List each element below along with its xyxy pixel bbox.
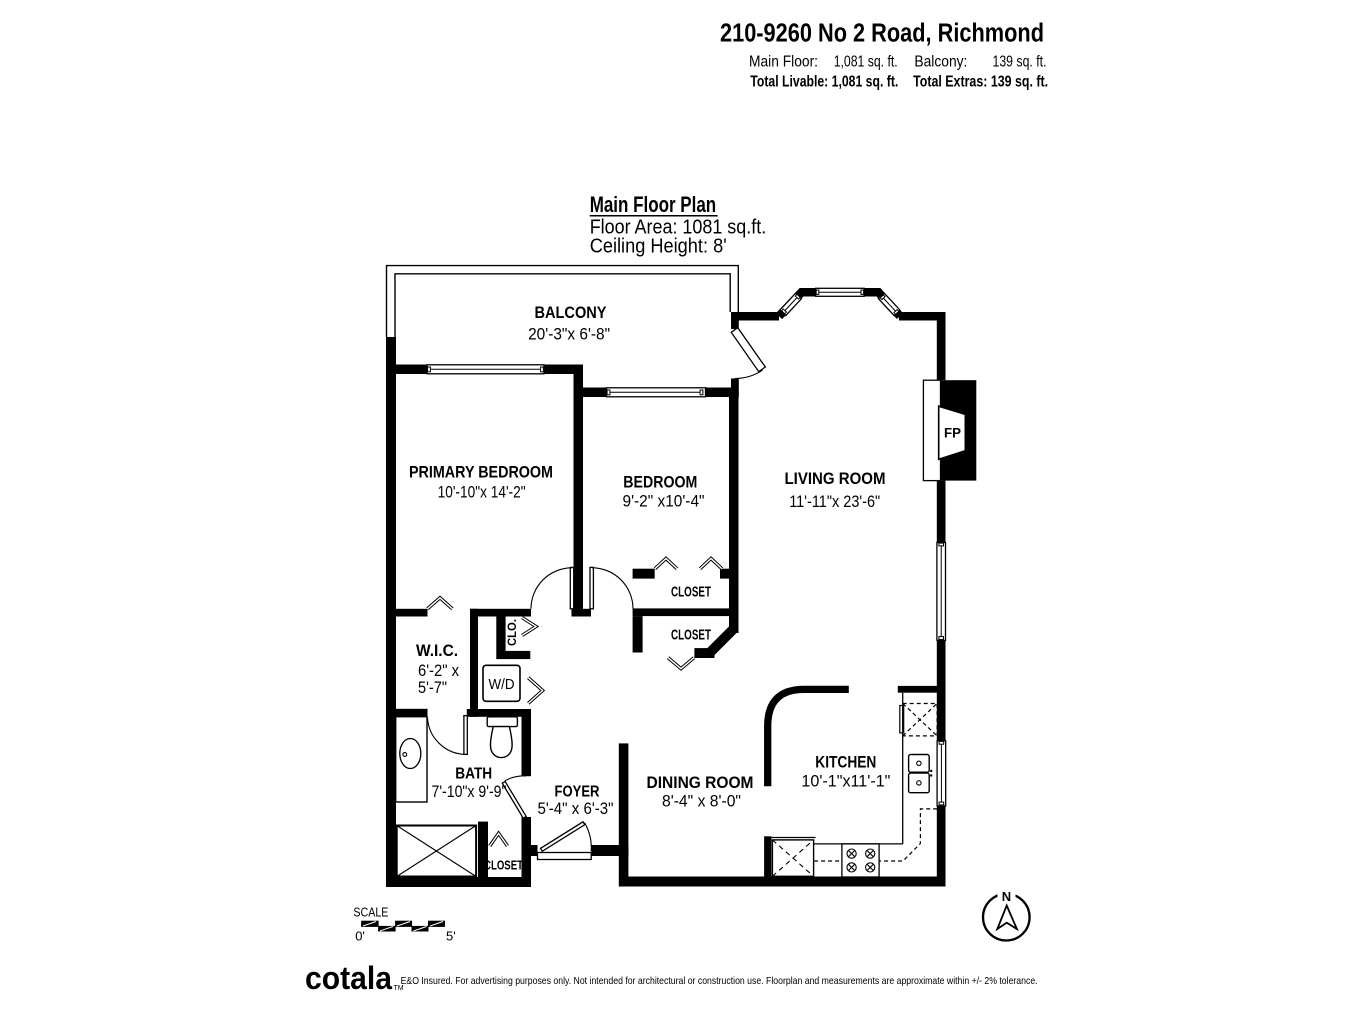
- svg-text:SCALE: SCALE: [353, 906, 388, 920]
- svg-text:FP: FP: [944, 426, 961, 441]
- svg-text:7'-10"x 9'-9": 7'-10"x 9'-9": [432, 782, 507, 801]
- svg-text:W/D: W/D: [489, 677, 515, 693]
- svg-text:BEDROOM: BEDROOM: [623, 473, 697, 492]
- svg-text:CLOSET: CLOSET: [671, 626, 711, 643]
- svg-text:LIVING ROOM: LIVING ROOM: [785, 469, 886, 488]
- svg-text:FOYER: FOYER: [555, 783, 600, 800]
- svg-text:1,081 sq. ft.: 1,081 sq. ft.: [834, 54, 898, 71]
- svg-text:BATH: BATH: [455, 766, 492, 783]
- svg-text:11'-11"x 23'-6": 11'-11"x 23'-6": [789, 492, 880, 511]
- svg-text:Main Floor Plan: Main Floor Plan: [590, 192, 717, 217]
- svg-text:Balcony:: Balcony:: [914, 54, 967, 71]
- svg-text:KITCHEN: KITCHEN: [815, 753, 876, 772]
- svg-text:Main Floor:: Main Floor:: [749, 54, 818, 71]
- svg-text:9'-2" x10'-4": 9'-2" x10'-4": [623, 492, 705, 511]
- svg-text:Total Livable: 1,081 sq. ft.: Total Livable: 1,081 sq. ft.: [750, 74, 898, 91]
- svg-text:5': 5': [446, 929, 456, 944]
- svg-text:5'-7": 5'-7": [418, 678, 447, 697]
- svg-text:cotala: cotala: [305, 960, 393, 996]
- svg-text:CLOSET: CLOSET: [671, 583, 711, 600]
- svg-text:DINING ROOM: DINING ROOM: [647, 773, 754, 792]
- svg-text:Ceiling Height: 8': Ceiling Height: 8': [590, 236, 727, 258]
- svg-text:BALCONY: BALCONY: [535, 303, 608, 322]
- svg-text:E&O Insured. For advertising p: E&O Insured. For advertising purposes on…: [401, 976, 1038, 987]
- svg-text:139 sq. ft.: 139 sq. ft.: [993, 54, 1047, 71]
- svg-text:210-9260 No 2 Road, Richmond: 210-9260 No 2 Road, Richmond: [720, 20, 1044, 48]
- svg-text:0': 0': [355, 929, 365, 944]
- svg-text:10'-10"x 14'-2": 10'-10"x 14'-2": [438, 483, 526, 502]
- svg-text:Total Extras: 139 sq. ft.: Total Extras: 139 sq. ft.: [913, 74, 1048, 91]
- svg-text:W.I.C.: W.I.C.: [416, 641, 458, 660]
- svg-text:CLO.: CLO.: [505, 619, 519, 646]
- svg-text:5'-4" x 6'-3": 5'-4" x 6'-3": [538, 799, 614, 818]
- svg-text:8'-4" x 8'-0": 8'-4" x 8'-0": [662, 792, 741, 811]
- svg-text:20'-3"x 6'-8": 20'-3"x 6'-8": [528, 324, 610, 343]
- svg-text:N: N: [1002, 889, 1011, 904]
- svg-text:10'-1"x11'-1": 10'-1"x11'-1": [801, 772, 890, 791]
- svg-text:CLOSET: CLOSET: [484, 859, 523, 873]
- svg-text:PRIMARY BEDROOM: PRIMARY BEDROOM: [409, 463, 553, 482]
